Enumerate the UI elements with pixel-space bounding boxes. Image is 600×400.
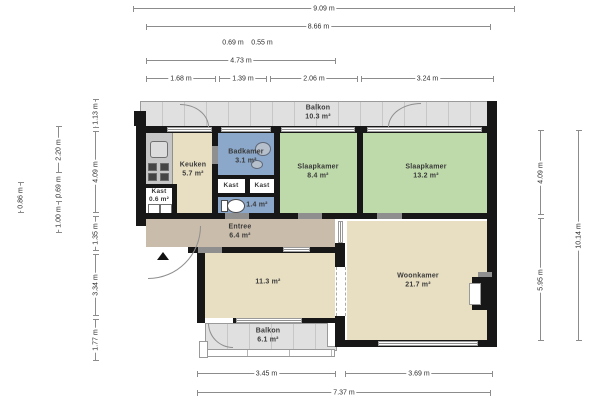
- wall: [487, 101, 497, 347]
- door-gap: [225, 213, 249, 219]
- door-gap: [198, 247, 222, 253]
- dim-label: 8.66 m: [306, 24, 331, 31]
- entrance-arrow: [157, 252, 169, 260]
- opening: [336, 267, 346, 316]
- wall: [245, 179, 250, 193]
- dim-line: 1.00 m: [58, 201, 59, 233]
- dim-line: 8.66 m: [146, 26, 491, 27]
- chimney: [478, 272, 492, 277]
- dim-line: 2.06 m: [270, 78, 358, 79]
- dim-label: 0.69 m: [222, 40, 243, 47]
- window: [378, 341, 478, 346]
- wall: [212, 133, 218, 213]
- floor-plan: Balkon10.3 m² Keuken5.7 m² Badkamer3.1 m…: [0, 0, 600, 400]
- door-arc: [148, 226, 201, 279]
- stove-icon: [160, 163, 169, 171]
- dim-line: 3.69 m: [345, 373, 493, 374]
- dim-label: 4.73 m: [228, 58, 253, 65]
- dim-line: 7.37 m: [197, 392, 491, 393]
- dim-label: 3.24 m: [415, 76, 440, 83]
- dim-label: 7.37 m: [331, 390, 356, 397]
- dim-label: 4.09 m: [93, 159, 100, 184]
- wall: [335, 243, 345, 267]
- dim-label: 3.45 m: [254, 371, 279, 378]
- dim-line: 3.34 m: [95, 254, 96, 316]
- dim-label: 1.35 m: [93, 221, 100, 246]
- sink-icon: [150, 141, 168, 158]
- dim-line: 1.35 m: [95, 216, 96, 251]
- dim-line: 1.39 m: [219, 78, 267, 79]
- room-label-badkamer: Badkamer3.1 m²: [228, 148, 263, 166]
- wall: [357, 133, 363, 213]
- dim-line: 3.24 m: [361, 78, 494, 79]
- dim-line: 1.77 m: [95, 319, 96, 361]
- wall: [274, 133, 280, 213]
- wall: [136, 126, 146, 226]
- dim-label: 1.00 m: [56, 204, 63, 229]
- dim-line: 0.69 m: [58, 176, 59, 198]
- dim-line: 4.09 m: [540, 130, 541, 215]
- window: [221, 127, 271, 132]
- dim-label: 1.39 m: [230, 76, 255, 83]
- room-label-entree: Entree6.4 m²: [229, 223, 252, 241]
- dim-label: 4.09 m: [538, 160, 545, 185]
- wall: [197, 247, 205, 323]
- room-label-balkon-bottom: Balkon6.1 m²: [256, 327, 281, 345]
- room-label-kast-right: Kast: [255, 182, 270, 190]
- dim-line: 10.14 m: [578, 130, 579, 341]
- window: [367, 127, 482, 132]
- window: [281, 127, 355, 132]
- balcony-post: [199, 341, 208, 358]
- door-gap: [377, 213, 402, 219]
- dim-label: 0.86 m: [18, 185, 25, 210]
- room-label-slaapkamer-1: Slaapkamer8.4 m²: [297, 163, 338, 181]
- stove-icon: [160, 173, 169, 181]
- wall: [218, 193, 274, 197]
- dim-line: 0.86 m: [20, 182, 21, 213]
- dim-line: 1.13 m: [95, 99, 96, 128]
- toilet-icon: [227, 199, 245, 213]
- room-label-toilet: 1.4 m²: [246, 202, 267, 211]
- dim-label: 0.69 m: [56, 174, 63, 199]
- dim-label: 0.55 m: [251, 40, 272, 47]
- dim-label: 5.95 m: [538, 267, 545, 292]
- room-label-kamer: 11.3 m²: [255, 279, 280, 288]
- window: [236, 318, 302, 323]
- window: [338, 221, 343, 243]
- dim-label: 3.69 m: [406, 371, 431, 378]
- dim-line: 4.09 m: [95, 131, 96, 213]
- door-gap: [212, 146, 218, 164]
- room-label-woonkamer: Woonkamer21.7 m²: [397, 272, 439, 290]
- stove-icon: [148, 173, 157, 181]
- room-label-balkon-top: Balkon10.3 m²: [305, 104, 331, 122]
- wall: [172, 188, 177, 215]
- stove-icon: [148, 163, 157, 171]
- window: [167, 127, 212, 132]
- dim-label: 2.20 m: [56, 137, 63, 162]
- door-gap: [283, 247, 310, 252]
- dim-line: 1.68 m: [146, 78, 216, 79]
- dim-label: 10.14 m: [576, 221, 583, 250]
- dim-label: 9.09 m: [311, 6, 336, 13]
- dim-label: 1.68 m: [168, 76, 193, 83]
- dim-line: 4.73 m: [146, 60, 336, 61]
- door-gap: [298, 213, 322, 219]
- dim-label: 1.13 m: [93, 101, 100, 126]
- room-label-keuken: Keuken5.7 m²: [180, 161, 207, 179]
- balcony-railing: [205, 349, 335, 357]
- room-label-kast-small: Kast0.6 m²: [149, 188, 169, 204]
- chimney-niche: [469, 283, 481, 305]
- wall: [134, 111, 146, 126]
- dim-line: 9.09 m: [133, 8, 515, 9]
- room-label-kast-left: Kast: [224, 182, 239, 190]
- dim-label: 1.77 m: [93, 327, 100, 352]
- room-label-slaapkamer-2: Slaapkamer13.2 m²: [405, 163, 446, 181]
- dim-label: 2.06 m: [301, 76, 326, 83]
- dim-line: 5.95 m: [540, 218, 541, 341]
- dim-line: 3.45 m: [197, 373, 336, 374]
- dim-line: 2.20 m: [58, 126, 59, 173]
- dim-label: 3.34 m: [93, 272, 100, 297]
